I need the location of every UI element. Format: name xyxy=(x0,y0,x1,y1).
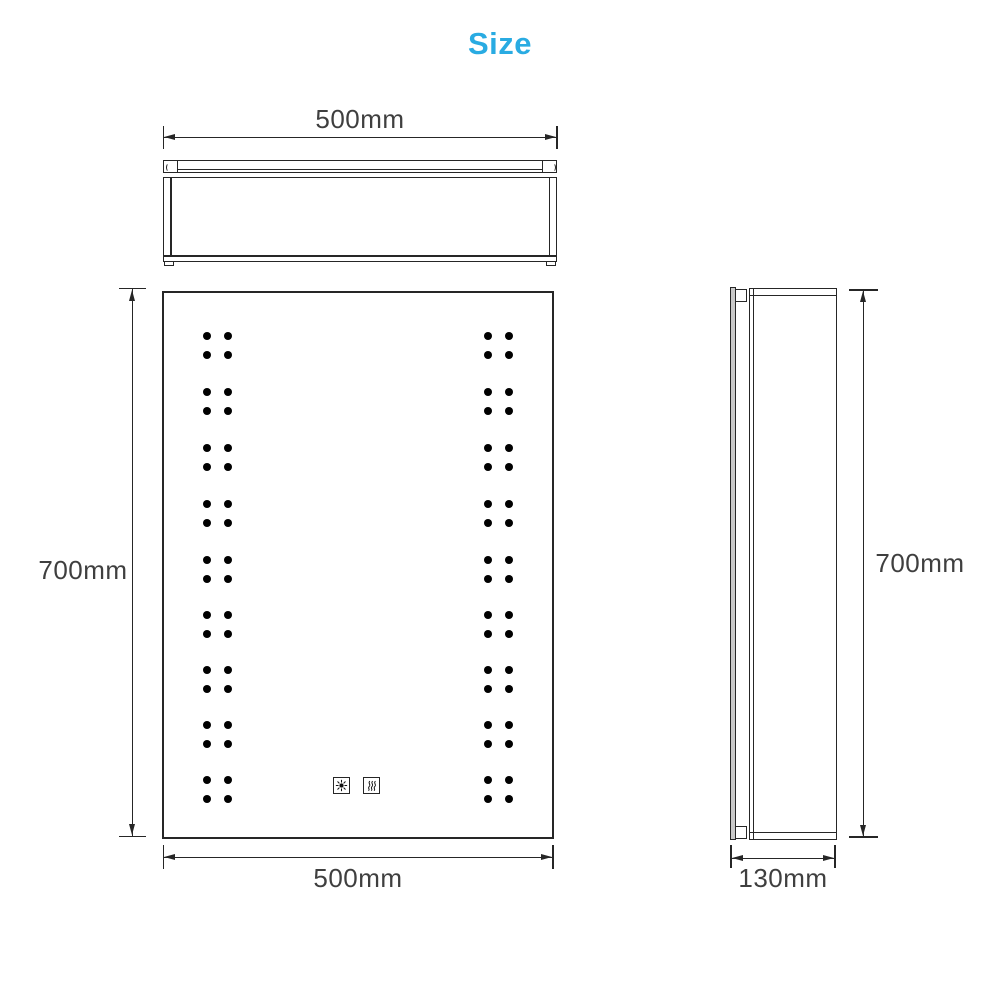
led-dot xyxy=(505,407,513,415)
led-dot xyxy=(203,351,211,359)
light-icon xyxy=(335,779,348,792)
led-dot xyxy=(224,519,232,527)
led-dot xyxy=(484,611,492,619)
dimension-label: 500mm xyxy=(268,863,448,894)
arrowhead-left-icon xyxy=(732,855,743,861)
page-title: Size xyxy=(0,26,1000,62)
extension-tick xyxy=(552,845,554,869)
led-dot xyxy=(203,795,211,803)
top-view-left-foot xyxy=(164,261,174,266)
led-dot xyxy=(224,463,232,471)
led-dot xyxy=(203,740,211,748)
demister-touch-button xyxy=(363,777,380,794)
led-dot xyxy=(203,463,211,471)
side-view-top-hinge xyxy=(735,289,747,302)
led-dot xyxy=(505,444,513,452)
led-dot xyxy=(484,721,492,729)
extension-tick xyxy=(849,836,878,838)
extension-tick xyxy=(119,836,146,838)
led-dot xyxy=(203,556,211,564)
led-dot xyxy=(505,795,513,803)
led-dot xyxy=(224,721,232,729)
arrowhead-right-icon xyxy=(541,854,552,860)
led-dot xyxy=(224,611,232,619)
led-dot xyxy=(505,611,513,619)
led-dot xyxy=(505,351,513,359)
led-dot xyxy=(203,332,211,340)
led-dot xyxy=(224,776,232,784)
led-dot xyxy=(505,332,513,340)
side-view-inner-left-line xyxy=(753,289,754,839)
light-touch-button xyxy=(333,777,350,794)
led-dot xyxy=(505,388,513,396)
dimension-label: 500mm xyxy=(270,104,450,135)
led-dot xyxy=(484,500,492,508)
led-dot xyxy=(505,556,513,564)
led-dot xyxy=(505,575,513,583)
led-dot xyxy=(505,685,513,693)
arrowhead-down-icon xyxy=(860,825,866,836)
led-dot xyxy=(203,519,211,527)
led-dot xyxy=(505,740,513,748)
extension-tick xyxy=(163,126,165,149)
top-view-cabinet-body xyxy=(163,177,557,256)
top-view-inner-wall-left xyxy=(170,178,172,255)
top-view-right-foot xyxy=(546,261,556,266)
led-dot xyxy=(203,611,211,619)
led-dot xyxy=(224,351,232,359)
led-dot xyxy=(224,795,232,803)
top-view-door-inner-line xyxy=(165,169,555,170)
led-dot xyxy=(484,407,492,415)
led-dot xyxy=(505,500,513,508)
arrowhead-left-icon xyxy=(164,134,175,140)
led-dot xyxy=(484,351,492,359)
hinge-mark-icon xyxy=(166,163,172,172)
led-dot xyxy=(484,795,492,803)
top-view-base-strip xyxy=(163,256,557,262)
arrowhead-right-icon xyxy=(823,855,834,861)
size-specification-diagram: Size 500mm xyxy=(0,0,1000,1000)
led-dot xyxy=(484,444,492,452)
led-dot xyxy=(203,388,211,396)
led-dot xyxy=(484,685,492,693)
side-view-bottom-hinge xyxy=(735,826,747,839)
led-dot xyxy=(203,630,211,638)
extension-tick xyxy=(119,288,146,290)
front-view-outline xyxy=(162,291,554,839)
led-dot xyxy=(505,463,513,471)
extension-tick xyxy=(730,845,732,868)
led-dot xyxy=(484,630,492,638)
led-dot xyxy=(224,630,232,638)
side-view-inner-bottom-line xyxy=(750,832,836,833)
led-dot xyxy=(484,740,492,748)
led-dot xyxy=(224,556,232,564)
led-dot xyxy=(224,685,232,693)
led-dot xyxy=(484,463,492,471)
led-dot xyxy=(484,332,492,340)
dimension-label: 700mm xyxy=(28,555,138,586)
led-dot xyxy=(224,388,232,396)
extension-tick xyxy=(849,289,878,291)
led-dot xyxy=(484,666,492,674)
led-dot xyxy=(484,776,492,784)
extension-tick xyxy=(834,845,836,868)
led-dot xyxy=(203,685,211,693)
led-dot xyxy=(505,666,513,674)
dimension-label: 130mm xyxy=(693,863,873,894)
side-view-inner-top-line xyxy=(750,295,836,296)
led-dot xyxy=(224,332,232,340)
demister-icon xyxy=(365,779,378,792)
led-dot xyxy=(505,519,513,527)
led-dot xyxy=(224,666,232,674)
led-dot xyxy=(505,776,513,784)
dimension-line xyxy=(863,290,865,837)
led-dot xyxy=(203,575,211,583)
led-dot xyxy=(505,721,513,729)
led-dot xyxy=(484,388,492,396)
arrowhead-right-icon xyxy=(545,134,556,140)
led-dot xyxy=(203,666,211,674)
dimension-line xyxy=(163,857,553,859)
arrowhead-down-icon xyxy=(129,824,135,835)
top-view-inner-wall-right xyxy=(549,178,551,255)
hinge-mark-icon xyxy=(550,163,556,172)
dimension-label: 700mm xyxy=(865,548,975,579)
led-dot xyxy=(224,575,232,583)
dimension-line xyxy=(163,137,557,139)
arrowhead-up-icon xyxy=(129,290,135,301)
led-dot xyxy=(484,519,492,527)
led-dot xyxy=(203,721,211,729)
led-dot xyxy=(203,407,211,415)
led-dot xyxy=(203,500,211,508)
led-dot xyxy=(484,575,492,583)
arrowhead-up-icon xyxy=(860,291,866,302)
side-view-door-edge xyxy=(730,287,736,840)
extension-tick xyxy=(556,126,558,149)
dimension-line xyxy=(731,858,835,860)
led-dot xyxy=(484,556,492,564)
extension-tick xyxy=(163,845,165,869)
led-dot xyxy=(224,407,232,415)
arrowhead-left-icon xyxy=(164,854,175,860)
top-view-door-edge xyxy=(163,160,557,173)
led-dot xyxy=(224,500,232,508)
led-dot xyxy=(224,740,232,748)
side-view-cabinet-body xyxy=(749,288,837,840)
dimension-line xyxy=(132,289,134,836)
led-dot xyxy=(505,630,513,638)
led-dot xyxy=(224,444,232,452)
led-dot xyxy=(203,776,211,784)
led-dot xyxy=(203,444,211,452)
